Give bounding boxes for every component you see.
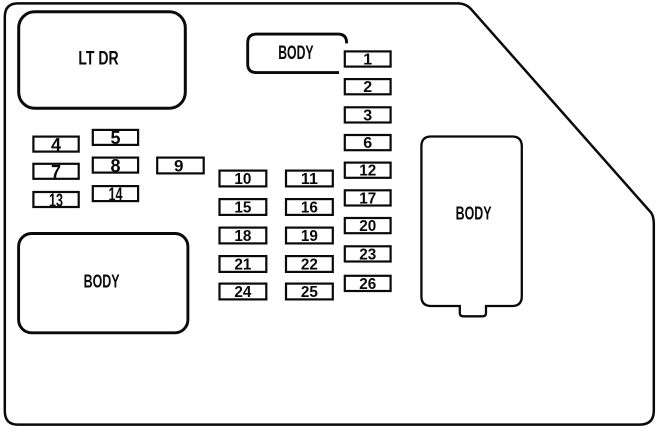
svg-text:BODY: BODY xyxy=(278,43,313,64)
svg-text:23: 23 xyxy=(359,246,376,263)
svg-text:9: 9 xyxy=(174,157,183,176)
svg-text:6: 6 xyxy=(363,135,372,152)
svg-text:19: 19 xyxy=(301,228,318,245)
svg-text:21: 21 xyxy=(234,257,251,274)
svg-text:BODY: BODY xyxy=(84,271,120,292)
svg-text:18: 18 xyxy=(234,228,251,245)
svg-text:12: 12 xyxy=(359,163,376,180)
svg-text:22: 22 xyxy=(301,257,318,274)
svg-text:16: 16 xyxy=(301,200,318,217)
svg-text:2: 2 xyxy=(363,79,372,96)
svg-text:3: 3 xyxy=(363,107,372,124)
svg-text:15: 15 xyxy=(234,200,251,217)
svg-text:26: 26 xyxy=(359,276,376,293)
svg-text:17: 17 xyxy=(359,190,376,207)
svg-text:25: 25 xyxy=(301,284,318,301)
svg-text:5: 5 xyxy=(110,128,120,148)
svg-text:1: 1 xyxy=(363,51,372,68)
svg-text:BODY: BODY xyxy=(456,204,492,224)
svg-text:14: 14 xyxy=(109,184,123,204)
svg-text:10: 10 xyxy=(234,171,251,188)
svg-text:20: 20 xyxy=(359,218,376,235)
svg-text:8: 8 xyxy=(110,156,120,176)
svg-text:13: 13 xyxy=(49,190,63,210)
svg-text:11: 11 xyxy=(301,171,318,188)
svg-text:7: 7 xyxy=(51,162,61,182)
svg-text:24: 24 xyxy=(234,284,251,301)
svg-text:LT DR: LT DR xyxy=(78,47,118,69)
svg-text:4: 4 xyxy=(51,135,61,155)
